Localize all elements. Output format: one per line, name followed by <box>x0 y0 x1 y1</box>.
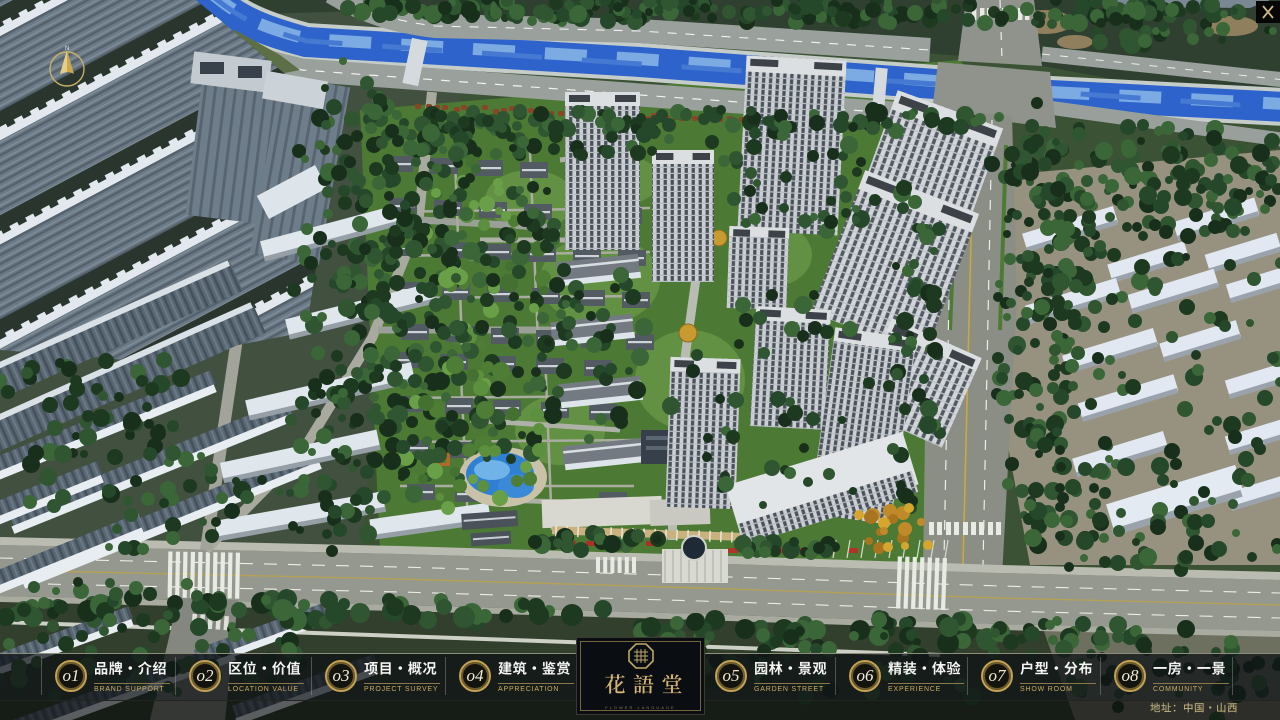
svg-text:N: N <box>65 46 69 52</box>
